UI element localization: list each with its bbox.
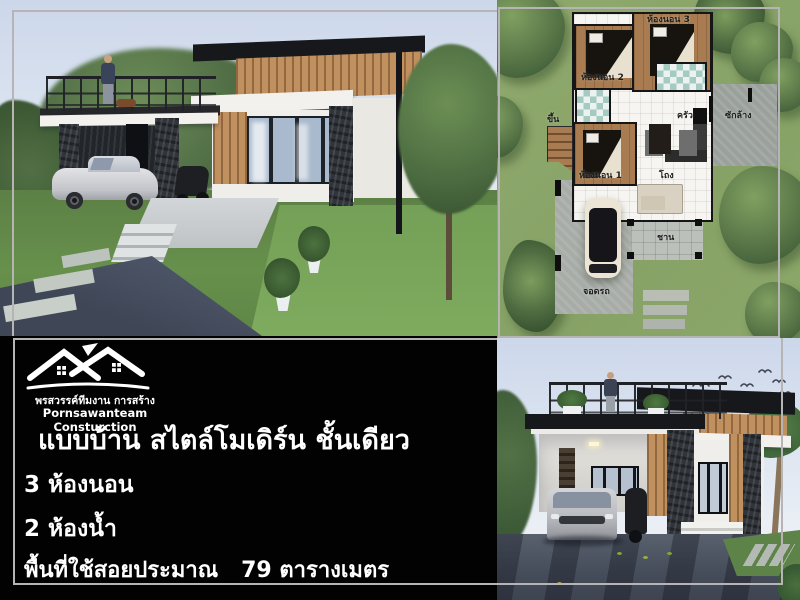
bed-pillow [589, 33, 603, 43]
bathroom-left [575, 88, 611, 126]
column [555, 255, 561, 271]
label-parking: จอดรถ [583, 284, 610, 298]
spec-bedrooms: 3 ห้องนอน [24, 467, 133, 503]
spec-bathrooms: 2 ห้องน้ำ [24, 511, 117, 547]
plan-car-glass [589, 208, 617, 262]
stone-pillar-center [329, 106, 353, 206]
column [627, 252, 634, 259]
leaf-dot-4 [667, 552, 672, 555]
label-bedroom2: ห้องนอน 2 [581, 70, 624, 84]
bathroom-top [655, 62, 707, 92]
poster-headline: แบบบ้าน สไตล์โมเดิร์น ชั้นเดียว [38, 418, 410, 461]
label-terrace: ชาน [657, 230, 674, 244]
curtain-glow-2 [296, 124, 308, 180]
spec-area: พื้นที่ใช้สอยประมาณ 79 ตารางเมตร [24, 552, 389, 587]
leaf-dot-2 [643, 556, 648, 559]
front-car-headlight-left [551, 514, 559, 519]
front-person-legs [606, 396, 615, 412]
dining-table [649, 124, 671, 154]
front-wood-door [729, 434, 743, 522]
label-kitchen: ครัว [677, 108, 693, 122]
wood-slat-panel-mid [647, 434, 667, 516]
curtain-glow [252, 122, 266, 182]
car-windshield [90, 158, 114, 170]
label-bedroom1: ห้องนอน 1 [579, 168, 622, 182]
bed-pillow [653, 27, 667, 37]
walkway-stone-3 [643, 319, 685, 329]
front-car-headlight-right [605, 514, 613, 519]
label-up: ขึ้น [547, 112, 559, 126]
car-wheel-front [66, 192, 83, 209]
label-hall: โถง [659, 168, 674, 182]
bed-pillow [586, 133, 599, 143]
tree-right-foliage [398, 44, 497, 214]
column [695, 252, 702, 259]
carport-roof-slab [525, 414, 705, 429]
ceiling-light [589, 442, 599, 446]
render-perspective-photo [0, 0, 497, 336]
front-car-grille [559, 516, 605, 524]
wall-stub [709, 96, 713, 122]
poster-canvas: ห้องนอน 3 ห้องนอน 2 ห้องนอน 1 ครัว ซักล้… [0, 0, 800, 600]
front-car-shadow [543, 536, 623, 546]
brand-logo-roof-icon [24, 342, 154, 394]
plan-car-hood [589, 264, 617, 273]
floor-plan: ห้องนอน 3 ห้องนอน 2 ห้องนอน 1 ครัว ซักล้… [497, 0, 800, 338]
front-motorcycle-wheel [629, 530, 642, 543]
deck-person-legs [103, 84, 113, 104]
leaf-dot-1 [617, 552, 622, 555]
label-laundry: ซักล้าง [725, 108, 752, 122]
label-bedroom3: ห้องนอน 3 [647, 12, 690, 26]
wall-stub [748, 88, 752, 102]
render-front-photo [497, 338, 800, 600]
walkway-stone-1 [643, 290, 689, 301]
car-wheel-rear [126, 193, 143, 210]
deck-person-head [104, 55, 112, 63]
deck-person-torso [101, 63, 115, 85]
plan-tree-right-big [719, 166, 800, 264]
front-motorcycle [625, 488, 647, 534]
info-panel: พรสวรรค์ทีมงาน การสร้าง Pornsawanteam Co… [0, 336, 497, 600]
hall-sofa-seat [641, 196, 665, 210]
deck-dog [116, 99, 136, 107]
front-pillar-right [743, 434, 761, 534]
column [695, 219, 702, 226]
walkway-stone-2 [643, 305, 687, 315]
wood-panel-doors-left [213, 112, 247, 184]
laundry-slab [703, 84, 777, 166]
front-window-big [698, 462, 728, 514]
kitchen-counter-bottom [665, 150, 707, 162]
column [627, 219, 634, 226]
front-car-windshield [553, 492, 611, 508]
front-person-head [607, 372, 614, 379]
front-person-torso [604, 379, 617, 397]
column [555, 180, 561, 196]
leaf-dot-3 [557, 582, 562, 585]
plan-tree-bottom-right [745, 282, 800, 338]
